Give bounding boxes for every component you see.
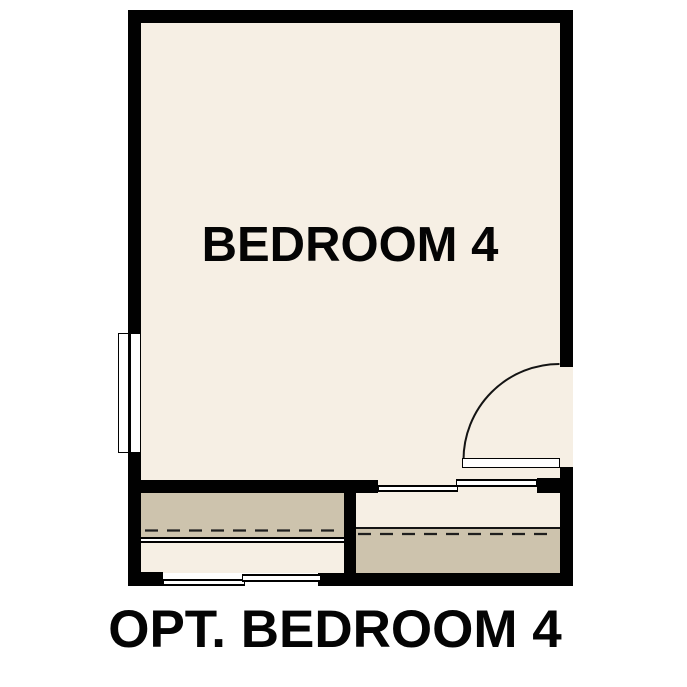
plan-linework <box>0 0 687 687</box>
floor-plan: BEDROOM 4 OPT. BEDROOM 4 <box>0 0 687 687</box>
room-label: BEDROOM 4 <box>130 221 570 270</box>
door-icon <box>462 458 560 468</box>
plan-caption: OPT. BEDROOM 4 <box>0 603 670 656</box>
door-swing-arc <box>464 364 560 460</box>
